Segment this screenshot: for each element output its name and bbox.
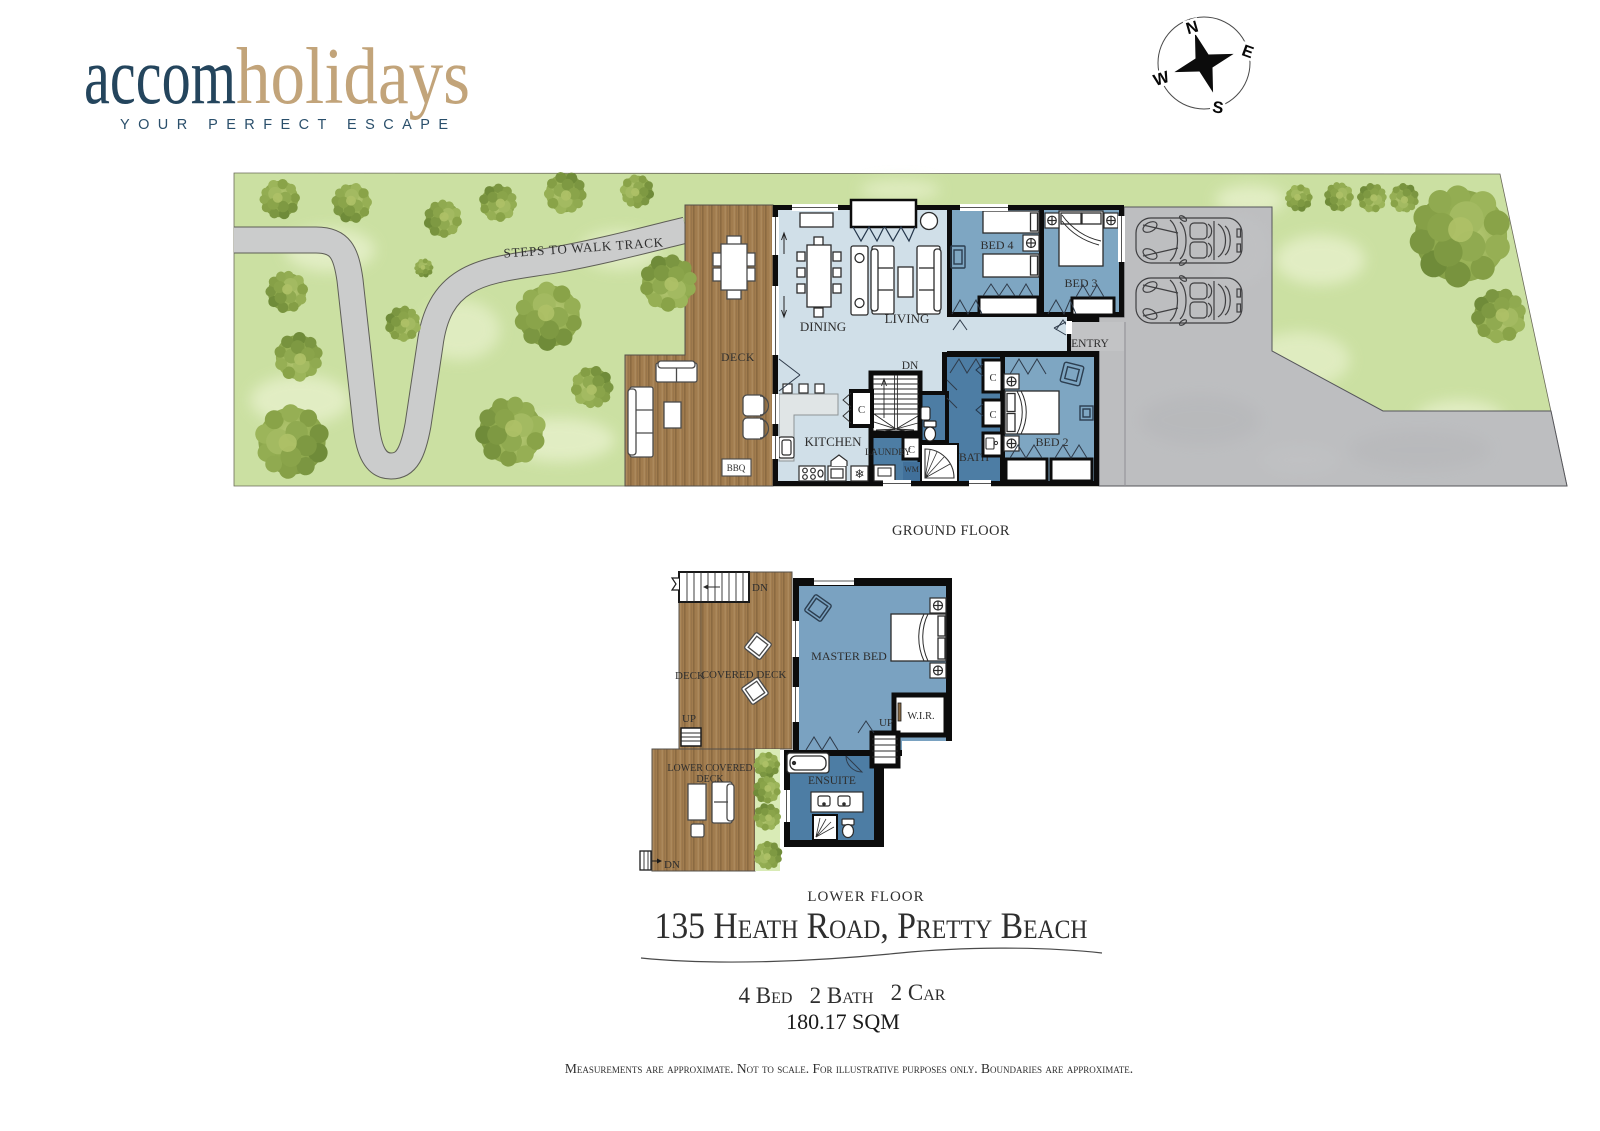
svg-text:DN: DN bbox=[664, 859, 680, 871]
svg-text:W.I.R.: W.I.R. bbox=[907, 711, 934, 722]
svg-text:C: C bbox=[989, 373, 996, 384]
svg-text:LOWER COVERED: LOWER COVERED bbox=[667, 763, 752, 774]
svg-text:DN: DN bbox=[902, 360, 919, 372]
svg-text:ENTRY: ENTRY bbox=[1071, 338, 1109, 350]
svg-text:ENSUITE: ENSUITE bbox=[808, 775, 856, 787]
svg-text:LAUNDRY: LAUNDRY bbox=[865, 448, 911, 458]
svg-text:DECK: DECK bbox=[696, 774, 724, 785]
svg-text:GROUND FLOOR: GROUND FLOOR bbox=[892, 523, 1010, 539]
svg-text:BED 2: BED 2 bbox=[1036, 435, 1069, 449]
svg-text:C: C bbox=[908, 445, 915, 456]
svg-text:180.17 SQM: 180.17 SQM bbox=[786, 1009, 900, 1034]
svg-text:MASTER BED: MASTER BED bbox=[811, 649, 887, 663]
svg-text:accom: accom bbox=[84, 33, 236, 121]
svg-text:BBQ: BBQ bbox=[727, 463, 746, 473]
svg-text:KITCHEN: KITCHEN bbox=[804, 434, 862, 449]
svg-text:C: C bbox=[858, 404, 865, 416]
svg-text:LIVING: LIVING bbox=[885, 311, 930, 326]
svg-text:Measurements are approximate.: Measurements are approximate. Not to sca… bbox=[565, 1061, 1133, 1076]
svg-text:DECK: DECK bbox=[675, 670, 705, 682]
svg-text:holidays: holidays bbox=[236, 33, 470, 121]
svg-text:COVERED DECK: COVERED DECK bbox=[702, 669, 787, 681]
svg-text:WM: WM bbox=[904, 465, 919, 474]
svg-text:4 Bed 2 Bath 2 Car: 4 Bed 2 Bath 2 Car bbox=[739, 980, 946, 1008]
svg-text:UP: UP bbox=[682, 713, 696, 725]
svg-text:❄: ❄ bbox=[854, 467, 864, 481]
svg-text:BED 4: BED 4 bbox=[981, 238, 1014, 252]
svg-text:DN: DN bbox=[752, 582, 768, 594]
svg-text:DECK: DECK bbox=[721, 352, 755, 364]
svg-text:UP: UP bbox=[879, 717, 893, 729]
svg-text:DINING: DINING bbox=[800, 319, 846, 334]
svg-text:LOWER FLOOR: LOWER FLOOR bbox=[807, 889, 924, 905]
svg-text:135 Heath Road, Pretty Beach: 135 Heath Road, Pretty Beach bbox=[655, 906, 1088, 947]
svg-text:C: C bbox=[989, 410, 996, 421]
